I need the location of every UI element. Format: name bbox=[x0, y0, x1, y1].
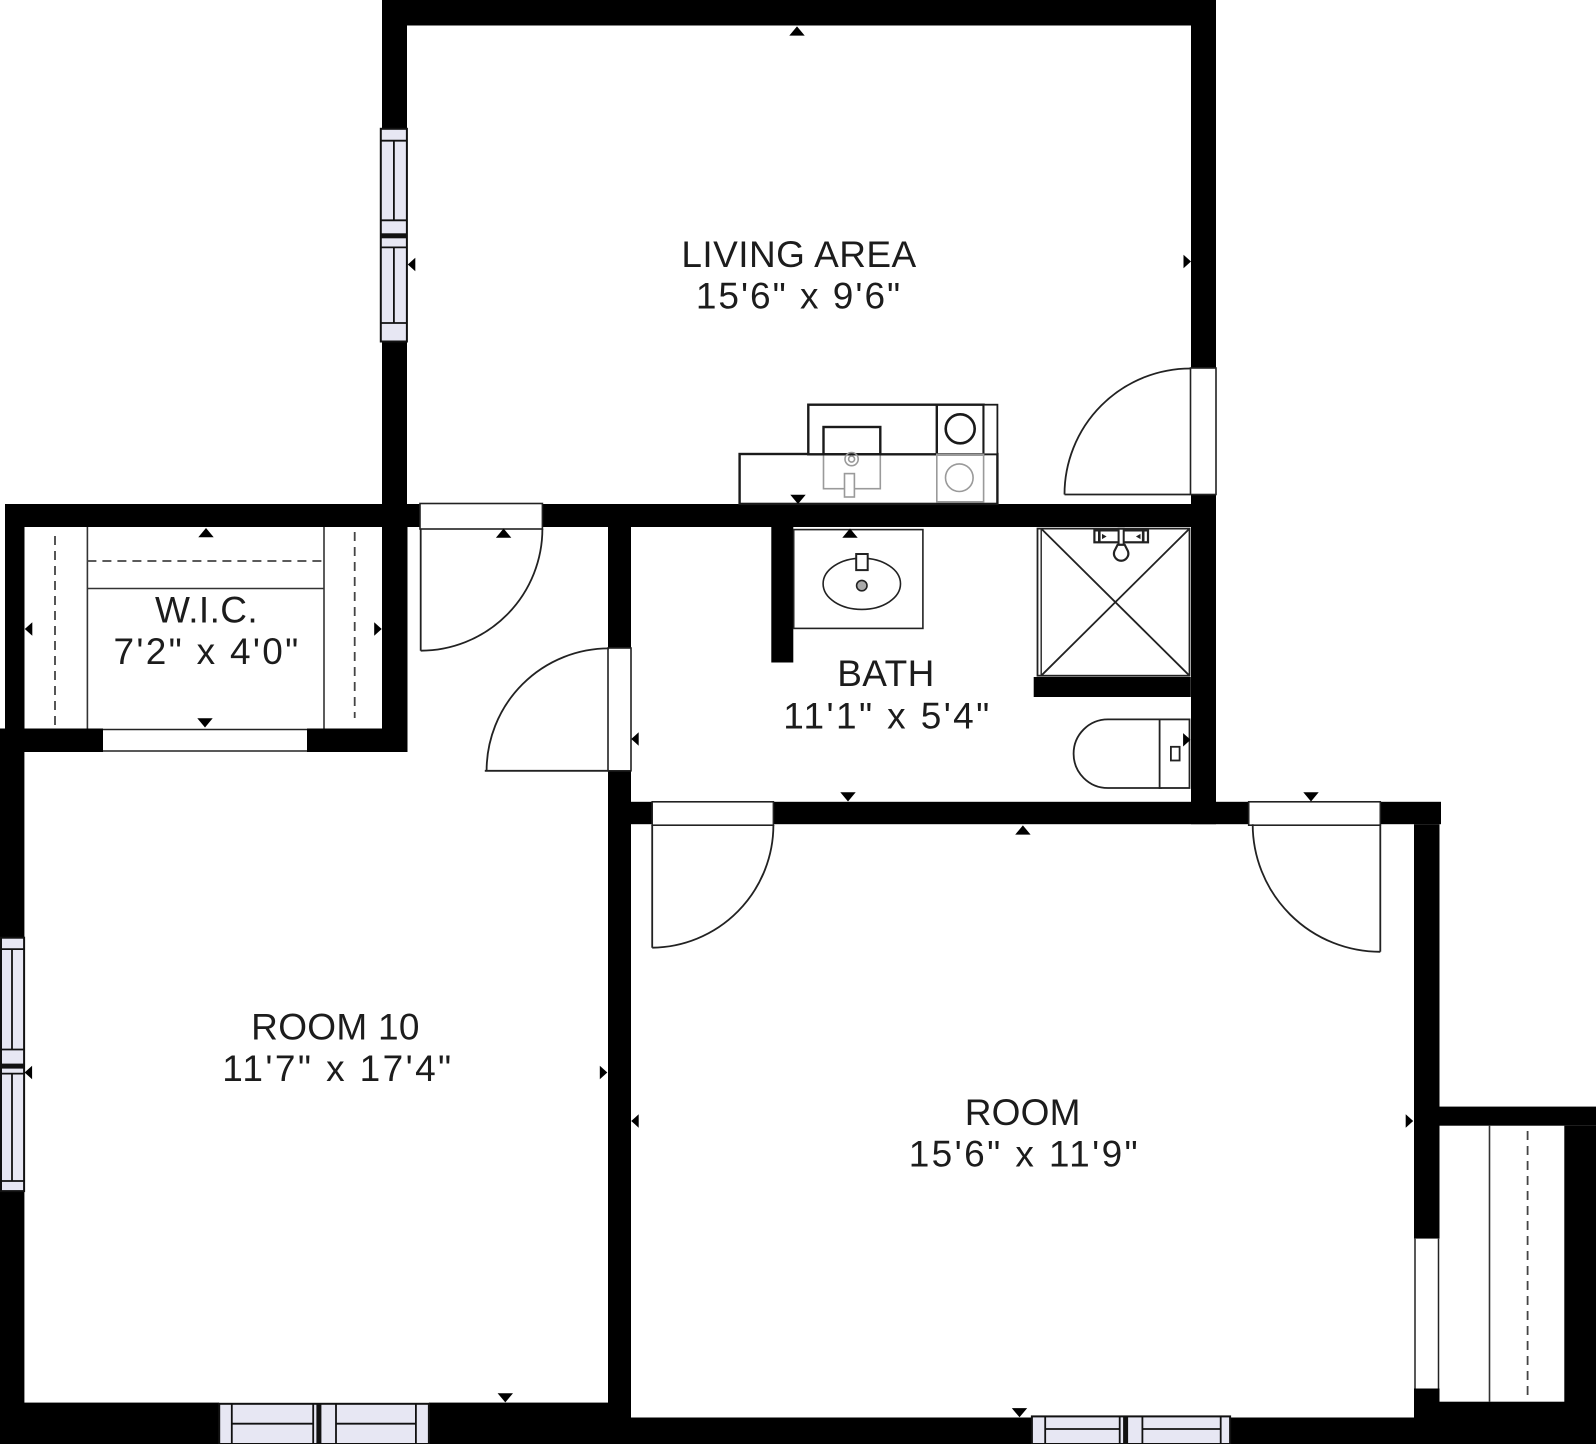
svg-text:7'2" x 4'0": 7'2" x 4'0" bbox=[113, 631, 300, 672]
svg-text:ROOM: ROOM bbox=[965, 1092, 1081, 1133]
svg-text:11'1" x 5'4": 11'1" x 5'4" bbox=[783, 696, 991, 737]
svg-text:11'7" x 17'4": 11'7" x 17'4" bbox=[222, 1048, 453, 1089]
svg-text:BATH: BATH bbox=[837, 653, 935, 694]
svg-text:15'6" x 11'9": 15'6" x 11'9" bbox=[909, 1134, 1140, 1175]
svg-text:15'6" x 9'6": 15'6" x 9'6" bbox=[696, 275, 902, 316]
svg-text:ROOM 10: ROOM 10 bbox=[251, 1007, 420, 1048]
svg-text:LIVING AREA: LIVING AREA bbox=[681, 234, 916, 275]
svg-text:W.I.C.: W.I.C. bbox=[155, 590, 258, 631]
